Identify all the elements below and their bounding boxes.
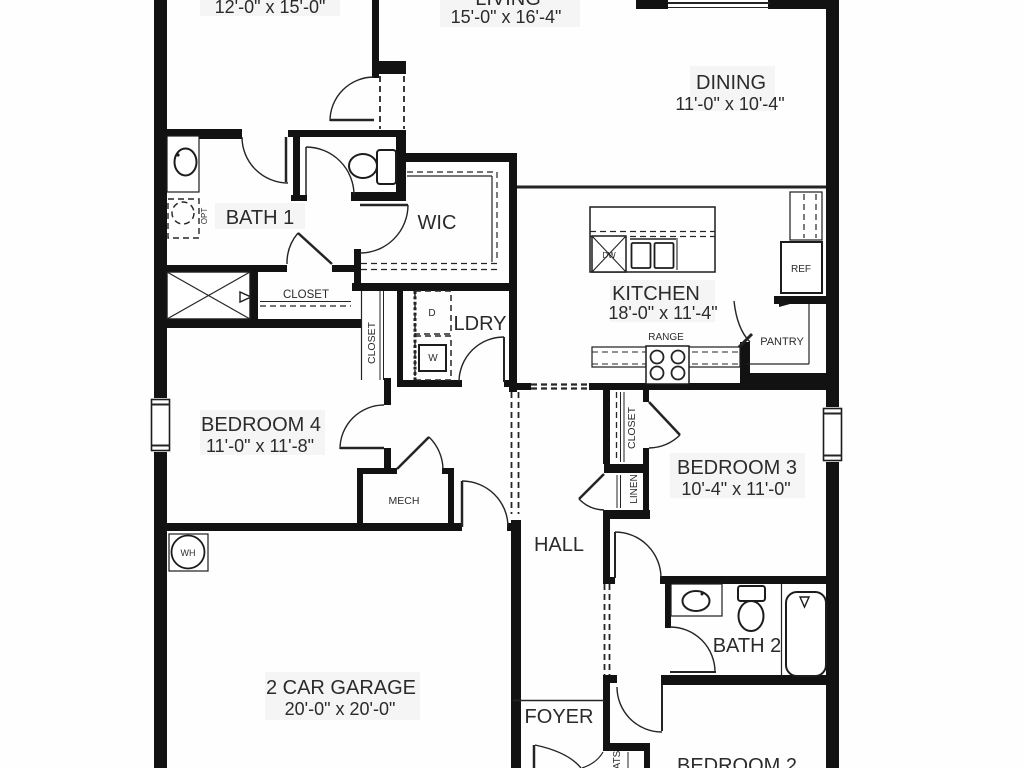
svg-text:CLOSET: CLOSET	[366, 321, 378, 364]
svg-text:REF: REF	[791, 264, 811, 275]
svg-text:11'-0" x 11'-8": 11'-0" x 11'-8"	[206, 436, 314, 456]
svg-text:LDRY: LDRY	[454, 313, 507, 335]
svg-text:DINING: DINING	[696, 72, 766, 94]
svg-text:FOYER: FOYER	[525, 706, 594, 728]
svg-text:BEDROOM 4: BEDROOM 4	[201, 414, 321, 436]
svg-text:DW: DW	[602, 251, 616, 260]
svg-text:12'-0" x 15'-0": 12'-0" x 15'-0"	[215, 0, 326, 17]
svg-text:15'-0" x 16'-4": 15'-0" x 16'-4"	[451, 7, 562, 27]
svg-text:LINEN: LINEN	[629, 474, 640, 503]
svg-text:BATH 1: BATH 1	[226, 207, 295, 229]
svg-text:ATS: ATS	[612, 750, 623, 768]
svg-text:CLOSET: CLOSET	[283, 289, 329, 301]
svg-text:BATH 2: BATH 2	[713, 635, 782, 657]
svg-text:10'-4" x 11'-0": 10'-4" x 11'-0"	[681, 479, 790, 499]
svg-text:CLOSET: CLOSET	[626, 406, 638, 449]
svg-text:KITCHEN: KITCHEN	[612, 283, 700, 305]
svg-text:D: D	[428, 308, 435, 319]
svg-text:2 CAR GARAGE: 2 CAR GARAGE	[266, 677, 416, 699]
svg-text:18'-0" x 11'-4": 18'-0" x 11'-4"	[608, 303, 717, 323]
svg-text:WIC: WIC	[418, 212, 457, 234]
svg-text:RANGE: RANGE	[648, 332, 684, 343]
svg-text:BEDROOM 3: BEDROOM 3	[677, 457, 797, 479]
svg-text:11'-0" x 10'-4": 11'-0" x 10'-4"	[675, 94, 784, 114]
svg-text:W: W	[428, 353, 438, 364]
svg-text:HALL: HALL	[534, 534, 584, 556]
svg-text:BEDROOM 2: BEDROOM 2	[677, 755, 797, 768]
svg-text:20'-0" x 20'-0": 20'-0" x 20'-0"	[285, 699, 396, 719]
svg-text:WH: WH	[181, 548, 196, 558]
svg-text:PANTRY: PANTRY	[760, 336, 804, 348]
svg-text:MECH: MECH	[389, 495, 420, 507]
svg-text:OPT: OPT	[200, 208, 209, 225]
